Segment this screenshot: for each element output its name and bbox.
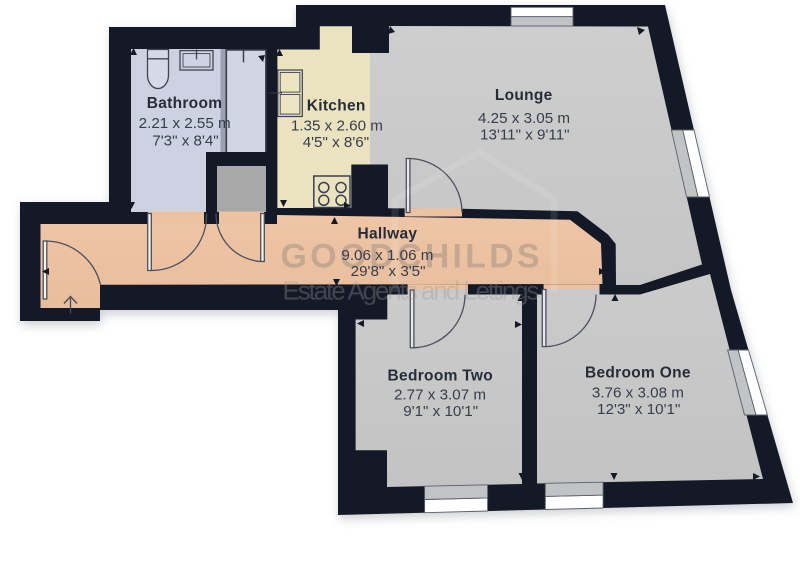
svg-text:1.35 x 2.60 m: 1.35 x 2.60 m: [291, 117, 383, 134]
svg-text:4.25 x 3.05 m: 4.25 x 3.05 m: [478, 110, 570, 127]
svg-text:Hallway: Hallway: [357, 226, 417, 243]
svg-text:Bedroom Two: Bedroom Two: [388, 368, 493, 385]
svg-text:2.77 x 3.07 m: 2.77 x 3.07 m: [394, 386, 486, 403]
svg-text:Estate Agents and Lettings: Estate Agents and Lettings: [283, 275, 540, 305]
svg-text:Lounge: Lounge: [495, 87, 553, 104]
svg-text:4'5" x 8'6": 4'5" x 8'6": [303, 134, 369, 151]
svg-text:2.21 x 2.55 m: 2.21 x 2.55 m: [139, 115, 231, 132]
svg-text:29'8" x 3'5": 29'8" x 3'5": [351, 263, 426, 280]
svg-text:9.06 x 1.06 m: 9.06 x 1.06 m: [341, 247, 433, 264]
svg-text:Kitchen: Kitchen: [307, 97, 366, 114]
svg-text:7'3" x 8'4": 7'3" x 8'4": [152, 132, 218, 149]
svg-text:Bathroom: Bathroom: [147, 95, 223, 112]
svg-text:Bedroom One: Bedroom One: [585, 364, 691, 381]
svg-text:9'1" x 10'1": 9'1" x 10'1": [403, 403, 478, 420]
svg-text:3.76 x 3.08 m: 3.76 x 3.08 m: [592, 385, 684, 402]
svg-text:12'3" x 10'1": 12'3" x 10'1": [597, 401, 680, 418]
svg-text:13'11" x 9'11": 13'11" x 9'11": [480, 126, 569, 143]
